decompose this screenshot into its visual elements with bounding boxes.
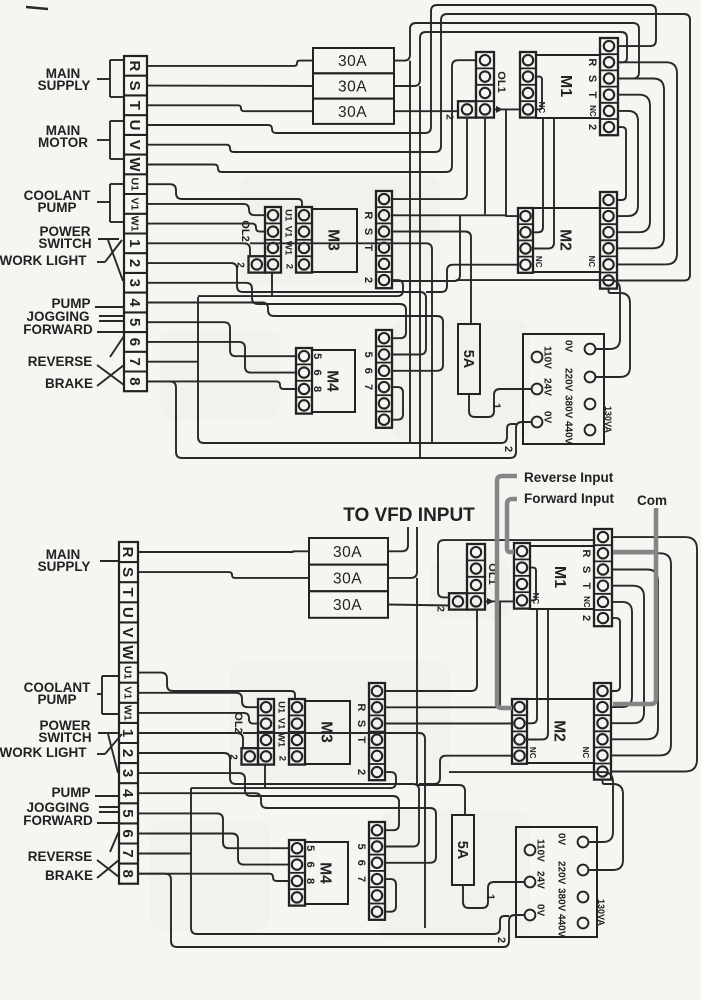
svg-text:220V: 220V (562, 368, 573, 392)
svg-text:M4: M4 (316, 862, 333, 884)
svg-text:U1: U1 (122, 666, 134, 680)
svg-text:2: 2 (126, 259, 143, 267)
svg-text:1: 1 (126, 239, 143, 247)
svg-text:NC: NC (582, 596, 591, 608)
svg-text:6: 6 (362, 368, 374, 374)
svg-text:S: S (355, 720, 367, 727)
svg-text:2: 2 (495, 937, 507, 943)
svg-text:M2: M2 (550, 720, 567, 742)
svg-text:TO VFD INPUT: TO VFD INPUT (343, 505, 475, 526)
svg-text:24V: 24V (541, 378, 552, 396)
svg-text:SUPPLY: SUPPLY (38, 78, 91, 93)
svg-text:PUMP: PUMP (37, 200, 76, 215)
svg-text:6: 6 (119, 829, 136, 837)
svg-text:5: 5 (119, 809, 136, 817)
svg-text:M3: M3 (324, 229, 341, 251)
svg-text:V1: V1 (283, 226, 294, 238)
svg-text:SUPPLY: SUPPLY (38, 559, 91, 574)
svg-text:U1: U1 (283, 209, 294, 222)
svg-text:110V: 110V (541, 346, 552, 369)
svg-text:OL1: OL1 (495, 71, 507, 92)
svg-text:NC: NC (581, 747, 590, 759)
svg-text:PUMP: PUMP (51, 785, 90, 800)
svg-text:MOTOR: MOTOR (38, 135, 88, 150)
svg-text:4: 4 (126, 298, 143, 307)
svg-text:30A: 30A (338, 104, 367, 121)
svg-text:7: 7 (119, 849, 136, 857)
svg-text:3: 3 (126, 279, 143, 287)
svg-text:V1: V1 (129, 197, 141, 210)
svg-text:R: R (119, 547, 136, 558)
svg-text:440V: 440V (562, 421, 573, 445)
svg-text:2: 2 (502, 446, 514, 452)
svg-text:5A: 5A (454, 841, 470, 860)
svg-text:0V: 0V (562, 340, 573, 353)
svg-text:2: 2 (284, 264, 295, 269)
svg-text:0V: 0V (555, 833, 566, 846)
svg-text:U1: U1 (276, 701, 287, 714)
svg-text:5: 5 (355, 843, 367, 849)
svg-text:R: R (580, 549, 592, 557)
svg-text:30A: 30A (333, 570, 362, 587)
svg-text:30A: 30A (338, 53, 367, 70)
svg-text:T: T (126, 101, 143, 110)
svg-text:30A: 30A (333, 544, 362, 561)
svg-text:T: T (355, 736, 367, 743)
svg-text:7: 7 (126, 358, 143, 366)
svg-text:220V: 220V (555, 861, 566, 885)
svg-text:SWITCH: SWITCH (38, 236, 91, 251)
svg-text:Forward Input: Forward Input (524, 491, 614, 506)
svg-text:REVERSE: REVERSE (28, 354, 93, 369)
svg-text:30A: 30A (333, 597, 362, 614)
svg-text:130VA: 130VA (596, 899, 606, 926)
svg-text:NC: NC (588, 105, 597, 117)
svg-text:REVERSE: REVERSE (28, 849, 93, 864)
svg-text:R: R (355, 703, 367, 711)
svg-text:5: 5 (126, 318, 143, 326)
svg-text:W1: W1 (276, 733, 287, 748)
svg-text:FORWARD: FORWARD (23, 322, 93, 337)
svg-text:SWITCH: SWITCH (38, 730, 91, 745)
svg-text:0V: 0V (534, 904, 545, 917)
svg-text:M1: M1 (551, 566, 568, 588)
svg-text:S: S (586, 75, 598, 82)
svg-text:380V: 380V (562, 395, 573, 419)
svg-text:2: 2 (362, 277, 374, 283)
svg-text:4: 4 (119, 789, 136, 798)
svg-text:2: 2 (355, 769, 367, 775)
svg-text:8: 8 (119, 870, 136, 878)
svg-text:6: 6 (355, 860, 367, 866)
svg-text:BRAKE: BRAKE (45, 376, 93, 391)
svg-text:5: 5 (362, 351, 374, 357)
svg-text:2: 2 (119, 749, 136, 757)
svg-text:24V: 24V (534, 871, 545, 889)
svg-text:S: S (126, 81, 143, 91)
svg-text:WORK LIGHT: WORK LIGHT (0, 745, 87, 760)
svg-text:2: 2 (580, 615, 592, 621)
svg-text:R: R (126, 60, 143, 71)
svg-text:S: S (580, 566, 592, 573)
svg-text:OL2: OL2 (232, 712, 244, 733)
svg-text:V: V (119, 627, 136, 637)
svg-text:R: R (362, 211, 374, 219)
svg-text:V1: V1 (122, 686, 134, 699)
svg-text:U1: U1 (129, 177, 141, 191)
svg-text:W: W (119, 645, 136, 660)
svg-text:T: T (362, 244, 374, 251)
svg-text:110V: 110V (534, 839, 545, 862)
svg-text:BRAKE: BRAKE (45, 868, 93, 883)
svg-text:M1: M1 (557, 75, 574, 97)
svg-text:U: U (119, 607, 136, 618)
svg-text:2: 2 (586, 124, 598, 130)
svg-text:W: W (126, 157, 143, 172)
svg-text:NC: NC (587, 256, 596, 268)
svg-text:FORWARD: FORWARD (23, 813, 93, 828)
svg-text:Com: Com (637, 493, 667, 508)
svg-text:PUMP: PUMP (37, 692, 76, 707)
svg-text:130VA: 130VA (603, 406, 613, 433)
svg-text:W1: W1 (122, 705, 134, 721)
svg-text:5A: 5A (460, 350, 476, 369)
svg-text:S: S (119, 567, 136, 577)
svg-text:R: R (586, 58, 598, 66)
svg-text:8: 8 (126, 377, 143, 385)
svg-text:7: 7 (355, 876, 367, 882)
svg-text:NC: NC (528, 747, 537, 759)
svg-text:NC: NC (534, 256, 543, 268)
svg-text:WORK LIGHT: WORK LIGHT (0, 253, 87, 268)
svg-text:30A: 30A (338, 79, 367, 96)
svg-text:T: T (580, 582, 592, 589)
svg-text:440V: 440V (555, 914, 566, 938)
svg-text:S: S (362, 228, 374, 235)
svg-text:T: T (119, 588, 136, 597)
svg-text:380V: 380V (555, 888, 566, 912)
svg-text:Reverse Input: Reverse Input (524, 470, 614, 485)
svg-text:6: 6 (126, 338, 143, 346)
svg-text:M2: M2 (556, 229, 573, 251)
svg-text:W1: W1 (129, 216, 141, 232)
svg-text:7: 7 (362, 384, 374, 390)
svg-text:U: U (126, 120, 143, 131)
svg-text:1: 1 (119, 729, 136, 737)
svg-text:3: 3 (119, 769, 136, 777)
svg-text:V1: V1 (276, 718, 287, 730)
svg-text:1: 1 (490, 403, 502, 409)
svg-text:T: T (586, 91, 598, 98)
svg-text:0V: 0V (541, 411, 552, 424)
svg-text:2: 2 (434, 606, 445, 612)
svg-text:V: V (126, 140, 143, 150)
svg-text:2: 2 (277, 756, 288, 761)
svg-text:1: 1 (484, 894, 496, 900)
svg-text:M4: M4 (323, 370, 340, 392)
